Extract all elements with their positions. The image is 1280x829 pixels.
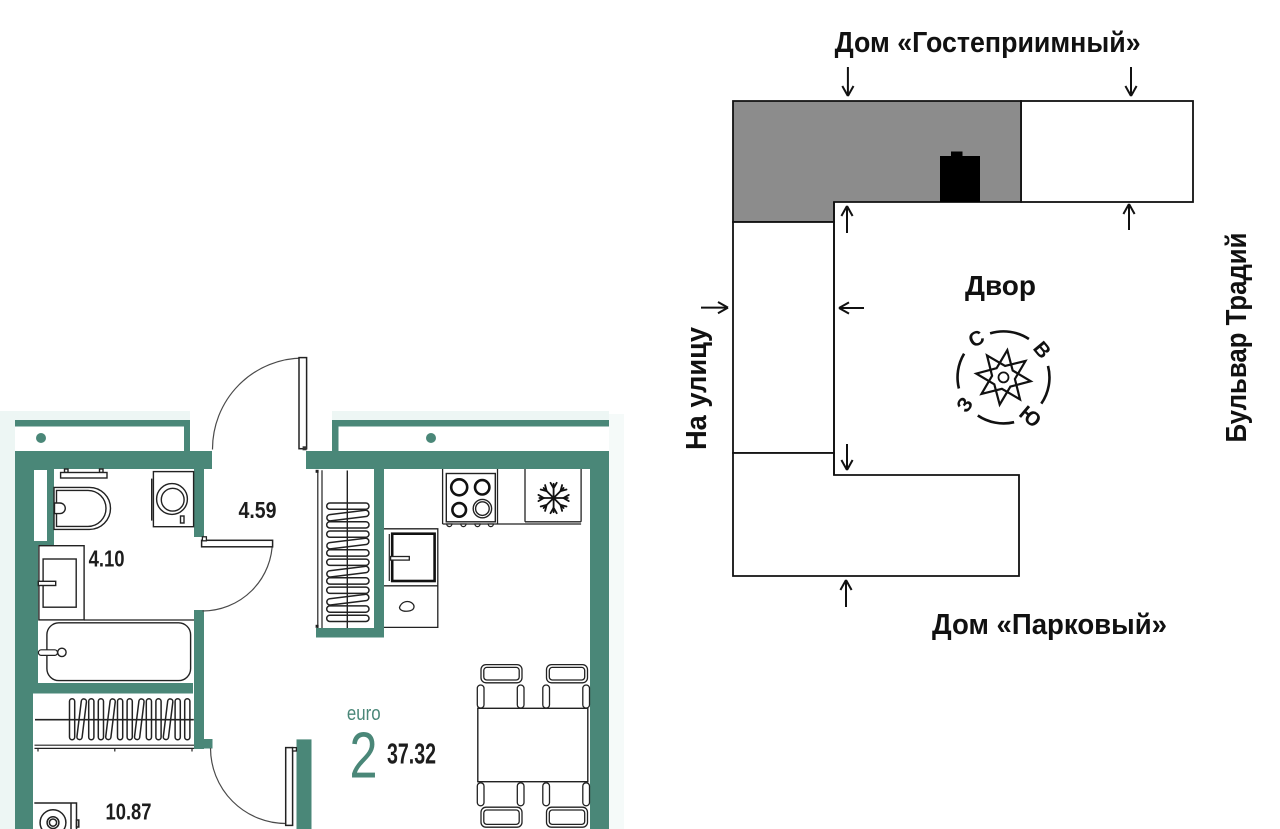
svg-text:10.87: 10.87: [106, 799, 152, 825]
svg-text:4.59: 4.59: [239, 497, 277, 523]
svg-text:4.10: 4.10: [89, 545, 125, 571]
svg-text:Дом «Гостеприимный»: Дом «Гостеприимный»: [835, 27, 1141, 59]
svg-text:Дом «Парковый»: Дом «Парковый»: [932, 609, 1167, 641]
svg-text:Бульвар Традий: Бульвар Традий: [1221, 233, 1253, 443]
svg-text:2: 2: [350, 719, 378, 792]
svg-text:Двор: Двор: [965, 270, 1036, 301]
svg-text:37.32: 37.32: [387, 738, 436, 770]
svg-text:На улицу: На улицу: [681, 327, 713, 450]
